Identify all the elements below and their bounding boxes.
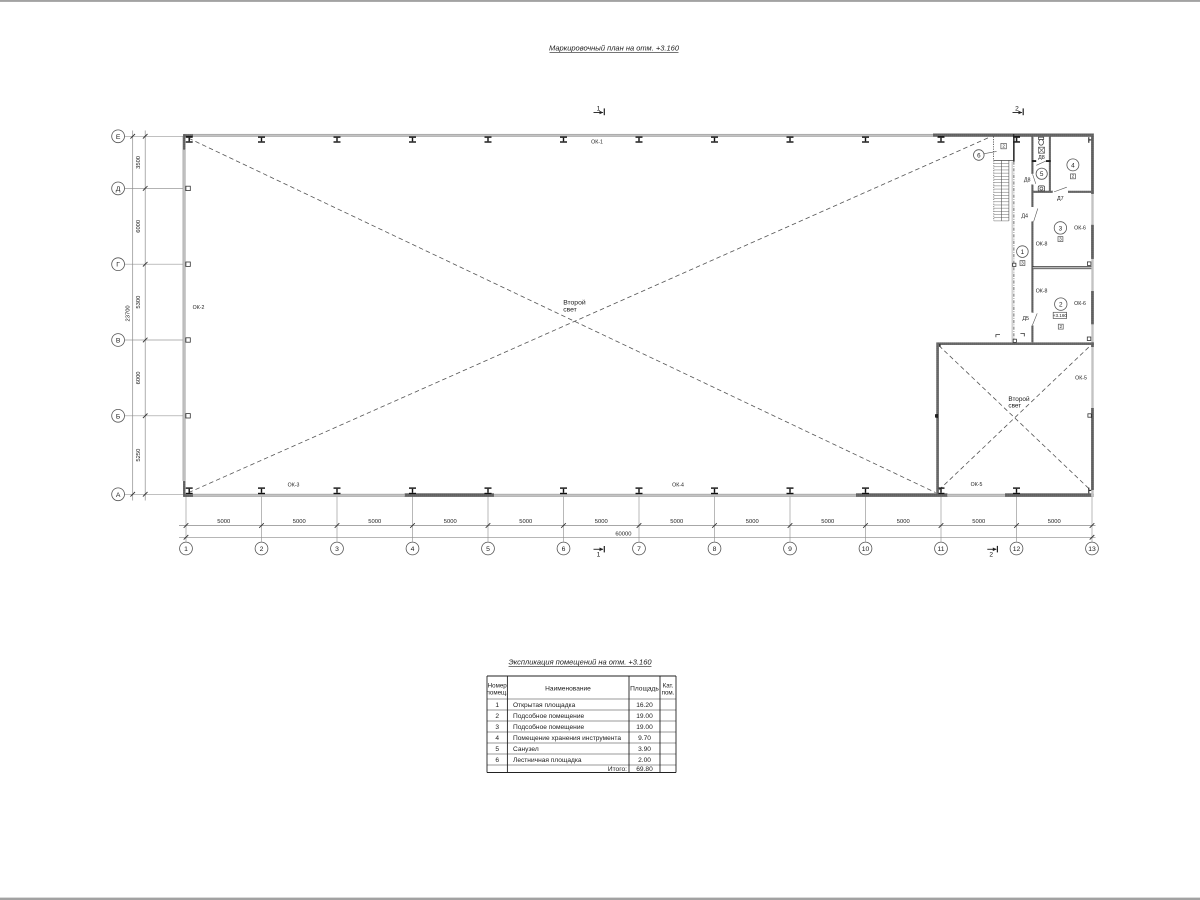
svg-text:ОК-8: ОК-8 bbox=[1036, 289, 1048, 295]
svg-text:Д4: Д4 bbox=[1021, 213, 1028, 219]
svg-text:60000: 60000 bbox=[615, 531, 631, 537]
svg-text:19.00: 19.00 bbox=[636, 724, 653, 731]
svg-text:10: 10 bbox=[862, 546, 870, 553]
svg-text:ОК-1: ОК-1 bbox=[591, 140, 603, 146]
svg-text:4: 4 bbox=[1071, 162, 1075, 169]
svg-text:6000: 6000 bbox=[136, 220, 142, 233]
svg-text:3500: 3500 bbox=[136, 156, 142, 169]
svg-text:Открытая площадка: Открытая площадка bbox=[513, 702, 576, 709]
svg-text:ОК-3: ОК-3 bbox=[288, 483, 300, 489]
svg-text:1: 1 bbox=[495, 702, 499, 709]
svg-text:9: 9 bbox=[788, 546, 792, 553]
svg-text:5: 5 bbox=[1040, 171, 1044, 178]
svg-text:ОК-5: ОК-5 bbox=[971, 482, 983, 488]
svg-text:7: 7 bbox=[637, 546, 641, 553]
svg-text:пом.: пом. bbox=[662, 690, 675, 697]
svg-text:ОК-8: ОК-8 bbox=[1036, 242, 1048, 248]
svg-text:16.20: 16.20 bbox=[636, 702, 653, 709]
svg-text:69.80: 69.80 bbox=[636, 766, 653, 773]
svg-text:Д8: Д8 bbox=[1038, 155, 1045, 161]
svg-text:3: 3 bbox=[1021, 260, 1024, 265]
svg-text:2: 2 bbox=[1015, 105, 1019, 112]
svg-text:Помещение хранения инструмента: Помещение хранения инструмента bbox=[513, 735, 621, 742]
svg-text:5000: 5000 bbox=[519, 519, 532, 525]
svg-text:5250: 5250 bbox=[136, 449, 142, 462]
svg-text:5: 5 bbox=[486, 546, 490, 553]
svg-text:5000: 5000 bbox=[293, 519, 306, 525]
svg-text:Кат.: Кат. bbox=[663, 683, 674, 690]
svg-text:6: 6 bbox=[977, 152, 981, 159]
svg-text:5000: 5000 bbox=[972, 519, 985, 525]
svg-text:3: 3 bbox=[335, 546, 339, 553]
svg-text:5000: 5000 bbox=[368, 519, 381, 525]
svg-text:5000: 5000 bbox=[670, 519, 683, 525]
svg-text:Площадь: Площадь bbox=[630, 685, 659, 692]
svg-text:3.90: 3.90 bbox=[638, 746, 651, 753]
svg-text:5000: 5000 bbox=[444, 519, 457, 525]
svg-text:Лестничная площадка: Лестничная площадка bbox=[513, 757, 582, 764]
svg-text:2: 2 bbox=[1072, 174, 1075, 179]
svg-text:5000: 5000 bbox=[746, 519, 759, 525]
svg-text:23700: 23700 bbox=[126, 305, 132, 321]
svg-text:2: 2 bbox=[495, 713, 499, 720]
svg-text:Д8: Д8 bbox=[1024, 178, 1031, 184]
svg-text:6: 6 bbox=[495, 757, 499, 764]
svg-text:12: 12 bbox=[1013, 546, 1021, 553]
svg-text:ОК-6: ОК-6 bbox=[1074, 226, 1086, 232]
svg-text:Подсобное помещение: Подсобное помещение bbox=[513, 712, 585, 720]
svg-text:Наименование: Наименование bbox=[545, 685, 591, 692]
svg-text:5000: 5000 bbox=[595, 519, 608, 525]
svg-text:+3.160: +3.160 bbox=[1053, 313, 1068, 318]
svg-text:1: 1 bbox=[597, 105, 601, 112]
svg-text:2: 2 bbox=[260, 546, 264, 553]
svg-text:8: 8 bbox=[713, 546, 717, 553]
svg-text:Санузел: Санузел bbox=[513, 746, 539, 753]
svg-text:Д7: Д7 bbox=[1057, 196, 1064, 202]
svg-text:Маркировочный план на отм. +3.: Маркировочный план на отм. +3.160 bbox=[549, 43, 680, 52]
svg-text:19.00: 19.00 bbox=[636, 713, 653, 720]
svg-text:5000: 5000 bbox=[897, 519, 910, 525]
svg-text:5000: 5000 bbox=[821, 519, 834, 525]
svg-text:2: 2 bbox=[1002, 144, 1005, 149]
svg-text:ОК-4: ОК-4 bbox=[672, 482, 684, 488]
svg-text:9.70: 9.70 bbox=[638, 735, 651, 742]
svg-text:1: 1 bbox=[184, 546, 188, 553]
svg-text:В: В bbox=[116, 338, 121, 345]
svg-text:ОК-6: ОК-6 bbox=[1074, 301, 1086, 307]
svg-text:2: 2 bbox=[1059, 324, 1062, 329]
svg-text:Д5: Д5 bbox=[1022, 316, 1029, 322]
svg-text:Е: Е bbox=[116, 134, 121, 141]
svg-text:13: 13 bbox=[1088, 546, 1096, 553]
svg-text:Экспликация помещений на отм.: Экспликация помещений на отм. +3.160 bbox=[508, 657, 652, 666]
svg-text:1: 1 bbox=[597, 552, 601, 559]
svg-text:4: 4 bbox=[495, 735, 499, 742]
svg-text:помещ.: помещ. bbox=[487, 690, 509, 697]
svg-text:Итого:: Итого: bbox=[608, 766, 627, 773]
svg-text:2.00: 2.00 bbox=[638, 757, 651, 764]
svg-text:6: 6 bbox=[562, 546, 566, 553]
svg-text:3: 3 bbox=[495, 724, 499, 731]
svg-text:ОК-2: ОК-2 bbox=[193, 305, 205, 311]
svg-text:3: 3 bbox=[1059, 225, 1063, 232]
svg-text:5000: 5000 bbox=[217, 519, 230, 525]
svg-text:2: 2 bbox=[989, 551, 993, 558]
svg-text:Д: Д bbox=[116, 186, 121, 193]
svg-text:1: 1 bbox=[1021, 249, 1025, 256]
svg-text:5000: 5000 bbox=[1048, 519, 1061, 525]
svg-text:11: 11 bbox=[937, 546, 944, 553]
svg-text:свет: свет bbox=[563, 307, 577, 314]
svg-text:3: 3 bbox=[1059, 236, 1062, 241]
svg-text:6000: 6000 bbox=[136, 371, 142, 384]
svg-text:Номер: Номер bbox=[488, 683, 508, 690]
svg-text:Подсобное помещение: Подсобное помещение bbox=[513, 723, 585, 731]
svg-text:Б: Б bbox=[116, 413, 121, 420]
svg-text:Г: Г bbox=[116, 262, 120, 269]
svg-text:ОК-5: ОК-5 bbox=[1075, 376, 1087, 382]
svg-text:5: 5 bbox=[495, 746, 499, 753]
svg-text:свет: свет bbox=[1008, 402, 1021, 409]
svg-text:Второй: Второй bbox=[563, 298, 586, 306]
svg-text:5300: 5300 bbox=[136, 296, 142, 309]
svg-text:А: А bbox=[116, 492, 121, 499]
svg-text:4: 4 bbox=[411, 546, 415, 553]
svg-text:2: 2 bbox=[1059, 302, 1063, 309]
